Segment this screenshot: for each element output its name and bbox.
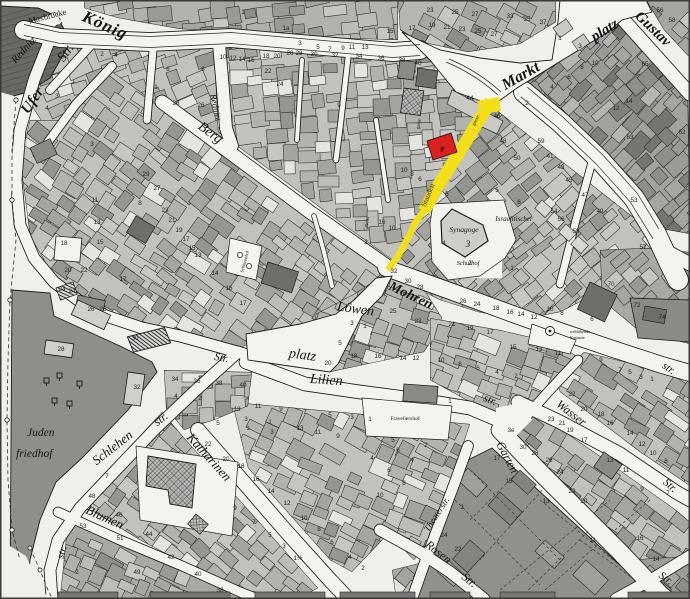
svg-text:25: 25 (451, 9, 459, 16)
svg-text:10: 10 (376, 492, 384, 499)
svg-text:65: 65 (641, 61, 649, 68)
svg-text:15: 15 (505, 478, 513, 485)
svg-text:22: 22 (568, 391, 576, 398)
svg-text:8: 8 (201, 66, 205, 73)
svg-text:17: 17 (119, 276, 127, 283)
svg-text:2: 2 (364, 239, 368, 246)
svg-text:1: 1 (510, 265, 514, 272)
svg-text:11: 11 (315, 429, 322, 436)
svg-text:4: 4 (495, 369, 499, 376)
svg-text:12: 12 (638, 441, 646, 448)
svg-text:17: 17 (580, 437, 588, 444)
svg-text:1: 1 (368, 416, 372, 423)
svg-text:17: 17 (239, 300, 247, 307)
svg-text:30: 30 (310, 51, 318, 58)
svg-text:18: 18 (237, 463, 245, 470)
svg-text:14: 14 (652, 556, 660, 563)
svg-text:26: 26 (459, 298, 467, 305)
svg-text:49: 49 (133, 569, 141, 576)
svg-text:1½: 1½ (294, 554, 304, 562)
svg-text:32: 32 (331, 52, 339, 59)
svg-text:4: 4 (410, 457, 414, 464)
svg-text:63: 63 (626, 134, 634, 141)
svg-text:23: 23 (426, 7, 434, 14)
svg-text:18: 18 (262, 53, 270, 60)
svg-text:3: 3 (639, 374, 643, 381)
svg-text:23: 23 (547, 416, 555, 423)
svg-text:8: 8 (664, 458, 668, 465)
svg-text:1: 1 (363, 323, 367, 330)
svg-text:1: 1 (650, 376, 654, 383)
svg-text:16: 16 (378, 219, 386, 226)
svg-text:6: 6 (330, 539, 334, 546)
svg-text:2: 2 (424, 442, 428, 449)
svg-text:27: 27 (153, 185, 161, 192)
svg-text:33: 33 (506, 13, 514, 20)
svg-text:12: 12 (229, 55, 237, 62)
svg-text:21: 21 (168, 217, 176, 224)
svg-text:40: 40 (239, 382, 247, 389)
svg-text:11: 11 (623, 467, 630, 474)
svg-text:14: 14 (211, 270, 219, 277)
svg-text:32: 32 (390, 268, 398, 275)
svg-text:12: 12 (412, 355, 420, 362)
svg-text:4: 4 (348, 554, 352, 561)
svg-text:25: 25 (474, 28, 482, 35)
svg-text:6: 6 (590, 316, 594, 323)
svg-text:16: 16 (247, 57, 255, 64)
svg-text:36: 36 (193, 378, 201, 385)
svg-text:57: 57 (639, 244, 647, 251)
svg-text:5: 5 (445, 191, 449, 198)
svg-text:1: 1 (448, 398, 452, 405)
svg-text:6: 6 (166, 66, 170, 73)
svg-text:23: 23 (161, 207, 169, 214)
svg-text:34: 34 (355, 53, 363, 60)
svg-text:28: 28 (172, 100, 180, 107)
svg-text:23: 23 (414, 318, 422, 325)
svg-text:14: 14 (399, 355, 407, 362)
svg-text:58: 58 (572, 228, 580, 235)
svg-text:59: 59 (537, 138, 545, 145)
svg-text:14: 14 (267, 488, 275, 495)
svg-text:16: 16 (252, 476, 260, 483)
svg-text:3: 3 (55, 93, 59, 100)
svg-text:Str.: Str. (213, 351, 229, 365)
svg-text:34: 34 (171, 376, 179, 383)
svg-text:3: 3 (298, 40, 302, 47)
svg-text:48: 48 (88, 493, 96, 500)
svg-text:56: 56 (656, 7, 664, 14)
svg-text:53: 53 (79, 523, 87, 530)
svg-text:24: 24 (440, 532, 448, 539)
svg-text:26: 26 (99, 306, 107, 313)
svg-text:6: 6 (396, 447, 400, 454)
svg-text:1a: 1a (282, 25, 290, 32)
svg-text:26: 26 (545, 457, 553, 464)
svg-text:47: 47 (581, 192, 589, 199)
svg-text:Fraveliershof: Fraveliershof (390, 415, 419, 422)
svg-text:10: 10 (437, 357, 445, 364)
svg-text:3: 3 (244, 416, 248, 423)
svg-text:20: 20 (273, 53, 281, 60)
svg-text:27: 27 (471, 11, 479, 18)
svg-text:21: 21 (448, 321, 456, 328)
svg-text:13: 13 (542, 498, 550, 505)
svg-text:19: 19 (175, 227, 183, 234)
svg-text:28: 28 (295, 50, 303, 57)
svg-text:25: 25 (389, 308, 397, 315)
svg-text:36: 36 (377, 55, 385, 62)
svg-text:20: 20 (324, 360, 332, 367)
svg-text:11: 11 (555, 350, 562, 357)
svg-text:5: 5 (338, 340, 342, 347)
svg-text:18: 18 (597, 411, 605, 418)
svg-text:32: 32 (133, 384, 141, 391)
svg-text:1: 1 (268, 419, 272, 426)
svg-text:11: 11 (255, 403, 262, 410)
svg-text:54: 54 (550, 208, 558, 215)
svg-text:72: 72 (633, 302, 641, 309)
svg-text:46: 46 (493, 113, 501, 120)
svg-text:1: 1 (558, 35, 562, 42)
svg-text:19: 19 (428, 22, 436, 29)
svg-text:43: 43 (557, 164, 565, 171)
svg-text:13: 13 (606, 457, 614, 464)
svg-text:20: 20 (580, 498, 588, 505)
svg-text:19: 19 (466, 325, 474, 332)
svg-text:11: 11 (590, 537, 597, 544)
svg-text:44: 44 (145, 531, 153, 538)
svg-text:70: 70 (607, 281, 615, 288)
svg-text:24: 24 (276, 81, 284, 88)
svg-text:1: 1 (246, 425, 250, 432)
svg-text:2: 2 (100, 51, 104, 58)
svg-text:22: 22 (80, 267, 88, 274)
svg-text:46: 46 (115, 512, 123, 519)
svg-text:10: 10 (649, 450, 657, 457)
svg-text:6: 6 (517, 199, 521, 206)
svg-text:9: 9 (341, 45, 345, 52)
svg-text:2: 2 (468, 260, 472, 267)
svg-text:16: 16 (606, 420, 614, 427)
svg-text:35: 35 (523, 16, 531, 23)
svg-text:6: 6 (418, 176, 422, 183)
svg-text:14: 14 (625, 98, 633, 105)
svg-text:8: 8 (138, 200, 142, 207)
svg-text:17: 17 (493, 455, 501, 462)
svg-text:3: 3 (350, 414, 354, 421)
svg-text:24: 24 (58, 286, 66, 293)
svg-text:28: 28 (416, 284, 424, 291)
svg-text:3: 3 (578, 43, 582, 50)
svg-text:48: 48 (499, 138, 507, 145)
svg-text:38: 38 (215, 380, 223, 387)
svg-text:8: 8 (580, 64, 584, 71)
svg-text:51: 51 (116, 535, 124, 542)
svg-text:rotblühende: rotblühende (570, 329, 590, 334)
svg-text:9: 9 (336, 433, 340, 440)
svg-text:15: 15 (386, 28, 394, 35)
svg-text:7: 7 (252, 519, 256, 526)
svg-text:12: 12 (530, 314, 538, 321)
svg-text:13: 13 (361, 44, 369, 51)
svg-text:38: 38 (216, 587, 224, 594)
svg-text:26: 26 (197, 102, 205, 109)
svg-text:6: 6 (476, 365, 480, 372)
svg-text:30: 30 (519, 444, 527, 451)
svg-text:8: 8 (317, 526, 321, 533)
svg-text:22: 22 (264, 68, 272, 75)
svg-text:26: 26 (286, 50, 294, 57)
svg-text:5: 5 (391, 437, 395, 444)
svg-text:17: 17 (408, 25, 416, 32)
svg-text:22: 22 (568, 488, 576, 495)
svg-text:5: 5 (628, 369, 632, 376)
svg-text:45: 45 (565, 177, 573, 184)
svg-text:12: 12 (283, 500, 291, 507)
svg-text:8: 8 (402, 480, 406, 487)
svg-text:22: 22 (204, 441, 212, 448)
svg-text:3e: 3e (507, 427, 515, 434)
svg-text:16: 16 (374, 353, 382, 360)
svg-text:10: 10 (300, 515, 308, 522)
svg-text:14: 14 (626, 430, 634, 437)
svg-text:9: 9 (599, 357, 603, 364)
svg-text:7: 7 (105, 473, 109, 480)
svg-text:14: 14 (517, 311, 525, 318)
svg-text:4: 4 (550, 84, 554, 91)
svg-text:4: 4 (114, 52, 118, 59)
svg-text:26: 26 (87, 306, 95, 313)
svg-text:16: 16 (506, 309, 514, 316)
svg-text:6: 6 (387, 467, 391, 474)
svg-text:30: 30 (404, 278, 412, 285)
svg-text:9: 9 (640, 486, 644, 493)
svg-text:50: 50 (513, 155, 521, 162)
svg-text:4: 4 (370, 455, 374, 462)
svg-text:2: 2 (75, 569, 79, 576)
svg-text:7: 7 (618, 367, 622, 374)
svg-text:41: 41 (546, 153, 554, 160)
svg-text:49: 49 (596, 208, 604, 215)
svg-text:17: 17 (182, 236, 190, 243)
svg-text:11: 11 (92, 197, 99, 204)
svg-text:16: 16 (636, 535, 644, 542)
svg-text:40: 40 (414, 60, 422, 67)
svg-text:27: 27 (490, 31, 498, 38)
svg-text:8: 8 (410, 171, 414, 178)
svg-text:15: 15 (96, 239, 104, 246)
svg-text:23: 23 (458, 26, 466, 33)
svg-text:6: 6 (567, 74, 571, 81)
svg-text:10: 10 (388, 225, 396, 232)
svg-text:9: 9 (233, 505, 237, 512)
svg-text:24: 24 (556, 469, 564, 476)
svg-text:7: 7 (303, 409, 307, 416)
svg-text:40: 40 (194, 571, 202, 578)
svg-text:62: 62 (678, 129, 686, 136)
svg-text:5: 5 (495, 187, 499, 194)
svg-text:8: 8 (458, 361, 462, 368)
svg-text:3: 3 (460, 504, 464, 511)
svg-text:1: 1 (154, 84, 158, 91)
svg-text:28: 28 (531, 450, 539, 457)
svg-text:15: 15 (188, 245, 196, 252)
svg-text:Israelitischer: Israelitischer (494, 215, 533, 223)
svg-text:2: 2 (525, 100, 529, 107)
svg-text:19: 19 (566, 427, 574, 434)
svg-text:22: 22 (454, 546, 462, 553)
svg-text:5: 5 (216, 420, 220, 427)
svg-text:53: 53 (630, 197, 638, 204)
svg-text:56: 56 (557, 216, 565, 223)
svg-text:12: 12 (612, 105, 620, 112)
svg-text:28: 28 (57, 346, 65, 353)
svg-text:21: 21 (558, 420, 566, 427)
svg-text:2: 2 (361, 565, 365, 572)
svg-text:8: 8 (560, 310, 564, 317)
svg-text:17: 17 (486, 329, 494, 336)
svg-text:5: 5 (268, 532, 272, 539)
svg-text:1: 1 (241, 9, 245, 16)
svg-text:20: 20 (222, 456, 230, 463)
svg-text:11: 11 (349, 44, 356, 51)
svg-text:5: 5 (316, 44, 320, 51)
svg-text:Juden: Juden (27, 427, 55, 439)
svg-text:3: 3 (465, 239, 471, 249)
svg-text:24: 24 (473, 301, 481, 308)
svg-text:18: 18 (350, 353, 358, 360)
svg-text:44: 44 (466, 95, 474, 102)
svg-text:13: 13 (535, 346, 543, 353)
svg-text:13: 13 (93, 219, 101, 226)
svg-text:3: 3 (90, 141, 94, 148)
svg-text:20: 20 (64, 267, 72, 274)
svg-text:15: 15 (509, 344, 517, 351)
svg-text:18: 18 (60, 240, 68, 247)
svg-text:4: 4 (442, 240, 446, 247)
svg-text:14: 14 (238, 56, 246, 63)
svg-text:10: 10 (219, 54, 227, 61)
svg-text:7: 7 (666, 490, 670, 497)
svg-text:13: 13 (296, 425, 304, 432)
svg-text:2: 2 (198, 395, 202, 402)
svg-text:Kastanie: Kastanie (570, 335, 585, 340)
svg-text:16: 16 (225, 285, 233, 292)
svg-text:3: 3 (270, 429, 274, 436)
svg-text:13: 13 (233, 406, 241, 413)
svg-text:37: 37 (539, 19, 547, 26)
svg-text:Synagoge: Synagoge (449, 225, 479, 234)
svg-text:20: 20 (580, 406, 588, 413)
svg-text:10: 10 (591, 60, 599, 67)
svg-text:42: 42 (167, 554, 175, 561)
svg-text:friedhof: friedhof (16, 448, 54, 460)
svg-text:10: 10 (400, 167, 408, 174)
svg-text:58: 58 (668, 17, 676, 24)
svg-text:13: 13 (194, 252, 202, 259)
svg-text:24: 24 (68, 288, 76, 295)
svg-text:2: 2 (514, 373, 518, 380)
svg-text:74: 74 (658, 314, 666, 321)
svg-text:29: 29 (142, 171, 150, 178)
svg-text:21: 21 (443, 24, 451, 31)
svg-text:18: 18 (492, 305, 500, 312)
svg-text:4: 4 (45, 105, 49, 112)
svg-text:3: 3 (282, 543, 286, 550)
svg-text:3: 3 (350, 320, 354, 327)
svg-text:Lilien: Lilien (308, 372, 343, 389)
svg-text:9: 9 (337, 102, 341, 109)
svg-text:10: 10 (546, 306, 554, 313)
svg-text:9: 9 (279, 406, 283, 413)
svg-text:4: 4 (174, 393, 178, 400)
svg-text:38: 38 (398, 57, 406, 64)
svg-text:30: 30 (131, 335, 139, 342)
svg-text:5: 5 (328, 412, 332, 419)
